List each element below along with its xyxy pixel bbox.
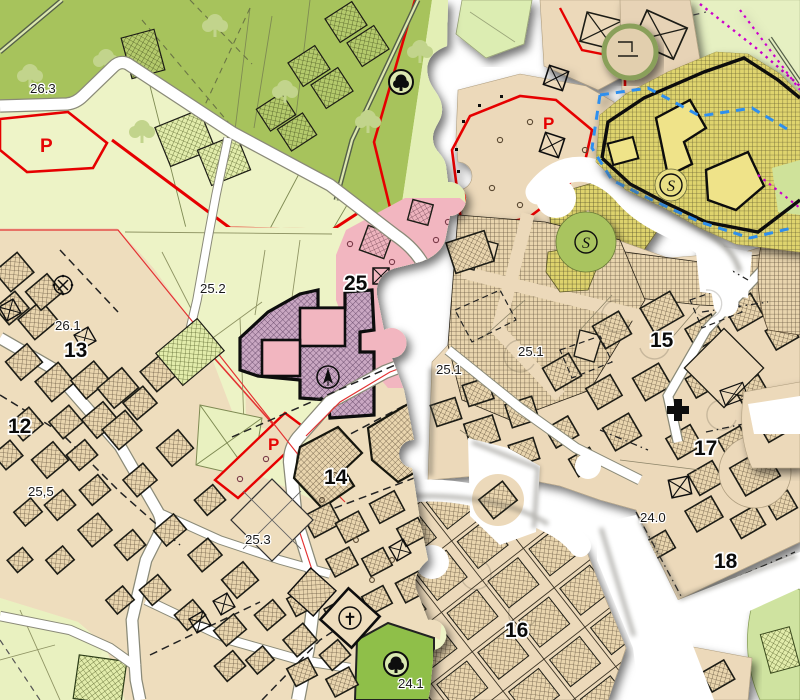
svg-text:S: S: [582, 235, 590, 252]
svg-text:S: S: [667, 178, 675, 195]
svg-text:12: 12: [8, 415, 31, 438]
svg-text:18: 18: [714, 550, 738, 573]
svg-text:25.1: 25.1: [518, 344, 544, 359]
svg-text:15: 15: [650, 329, 674, 352]
svg-text:25.3: 25.3: [245, 532, 271, 547]
svg-text:17: 17: [694, 437, 717, 460]
svg-text:P: P: [268, 435, 279, 454]
svg-text:13: 13: [64, 339, 87, 362]
svg-text:✝: ✝: [343, 610, 357, 629]
svg-text:24.0: 24.0: [640, 510, 666, 525]
svg-text:P: P: [543, 114, 554, 133]
svg-text:14: 14: [324, 466, 348, 489]
svg-text:25.2: 25.2: [200, 281, 226, 296]
svg-text:16: 16: [505, 619, 528, 642]
svg-text:P: P: [40, 136, 53, 157]
svg-text:26.1: 26.1: [55, 318, 81, 333]
svg-text:24.1: 24.1: [398, 676, 424, 691]
svg-text:25.1: 25.1: [436, 362, 462, 377]
svg-text:26.3: 26.3: [30, 81, 56, 96]
svg-text:25: 25: [344, 272, 368, 295]
svg-text:25,5: 25,5: [28, 484, 54, 499]
